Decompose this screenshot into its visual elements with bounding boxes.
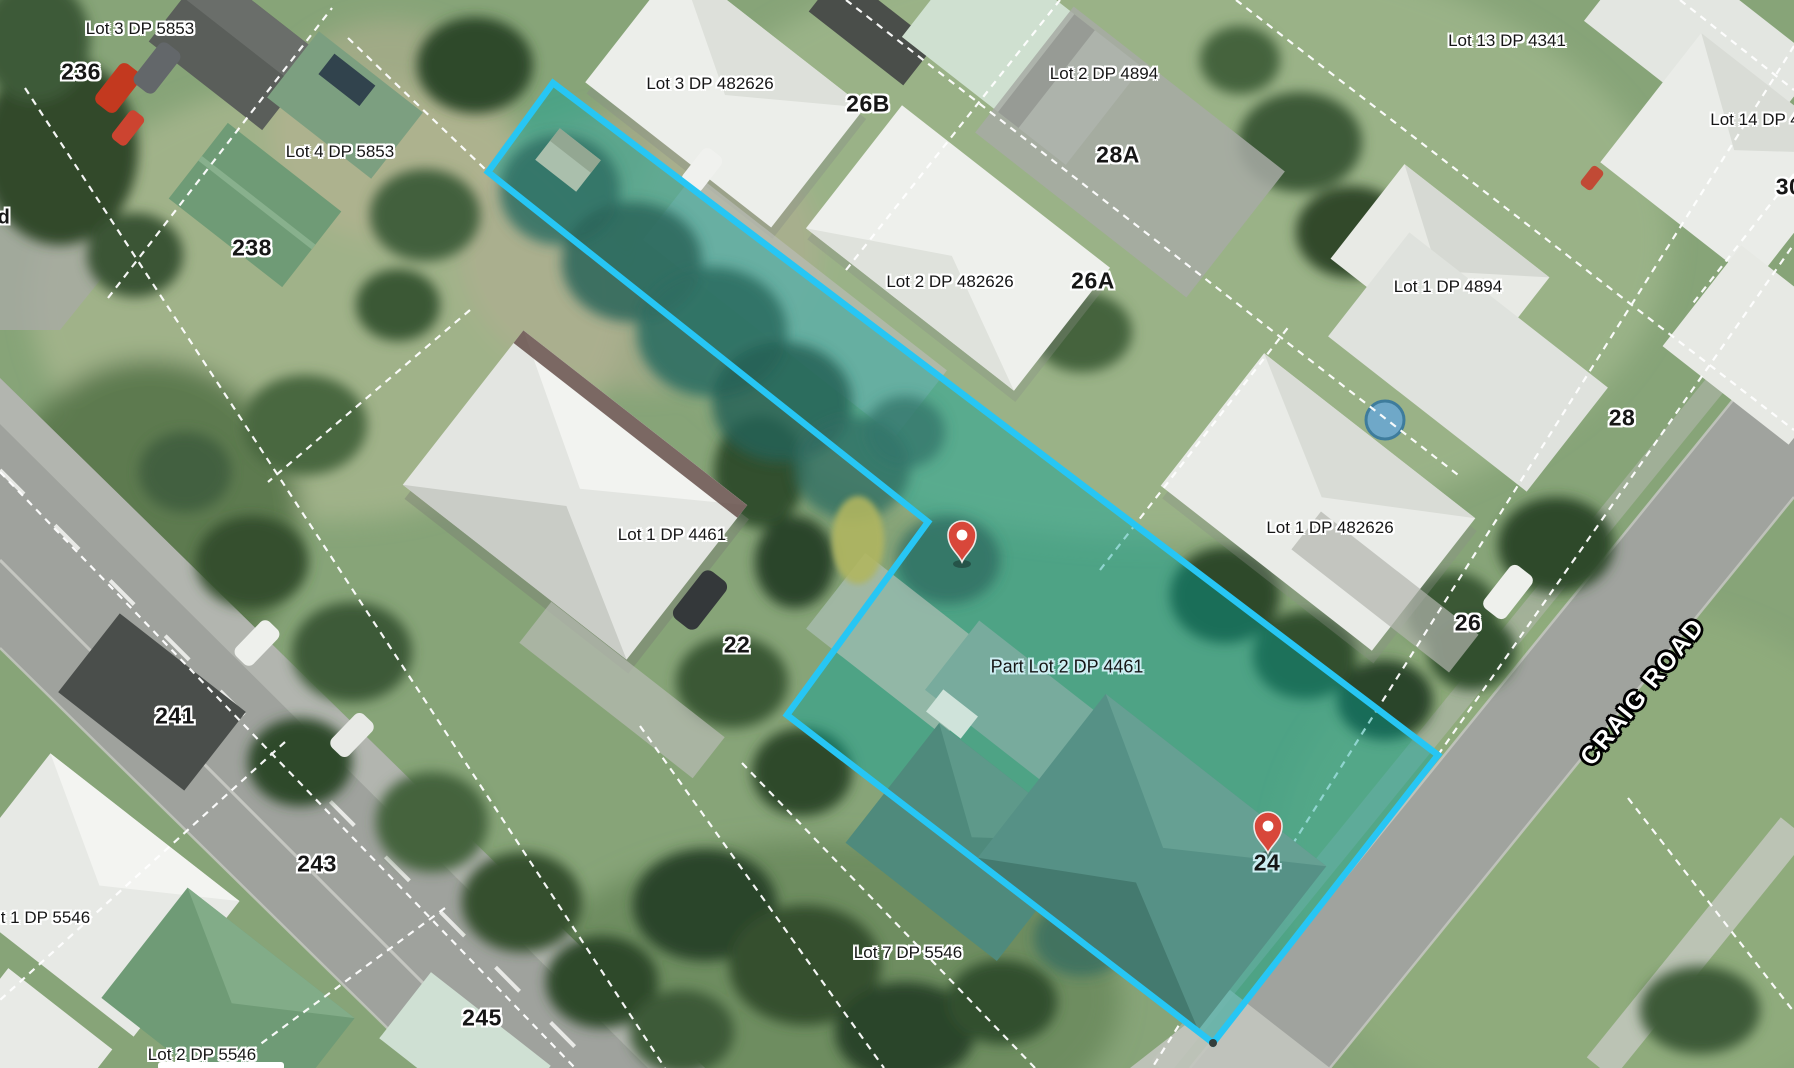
map-canvas[interactable]: Lot 3 DP 5853 236 Lot 4 DP 5853 238 d Lo… (0, 0, 1794, 1068)
clipped-label-sliver (158, 1062, 284, 1068)
aerial-imagery (0, 0, 1794, 1068)
